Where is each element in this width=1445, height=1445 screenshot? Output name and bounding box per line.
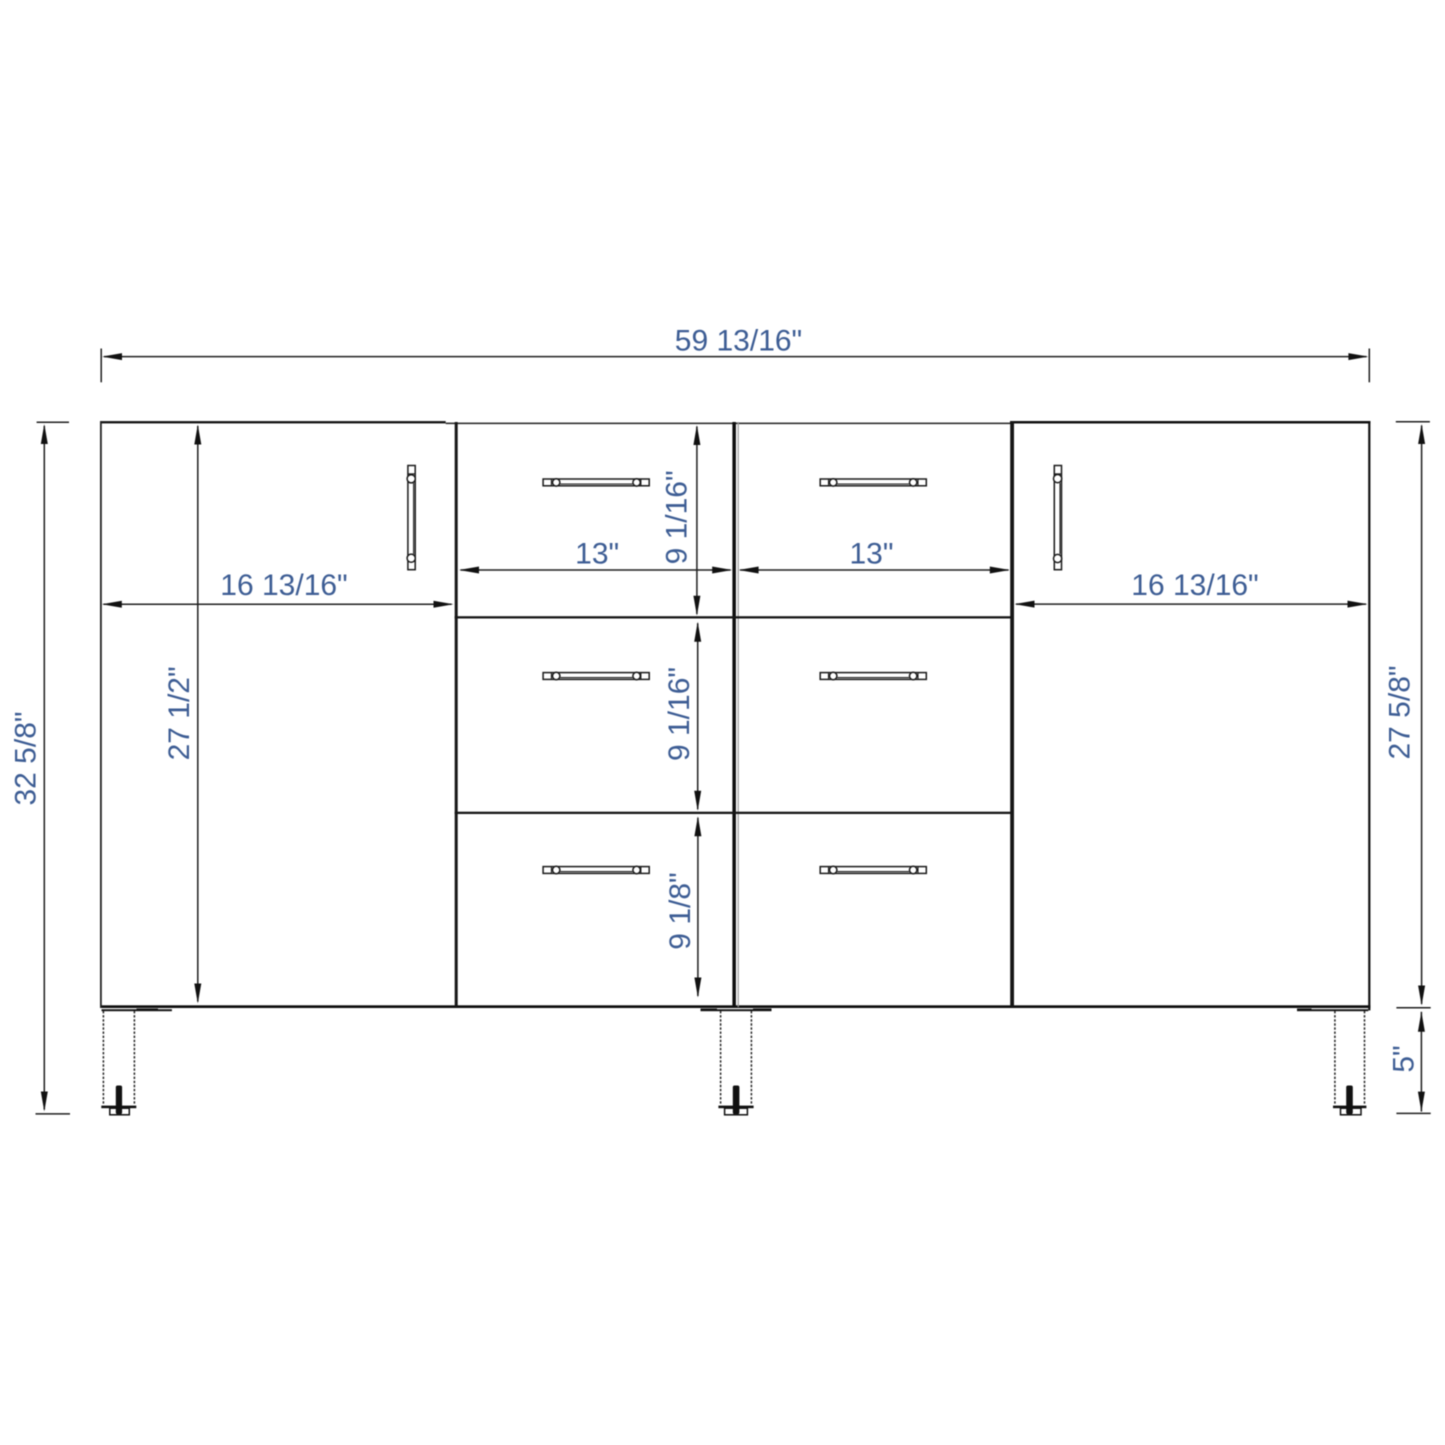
svg-text:32 5/8": 32 5/8" xyxy=(10,711,43,805)
svg-text:16 13/16": 16 13/16" xyxy=(1131,569,1258,602)
svg-text:27 5/8": 27 5/8" xyxy=(1384,665,1417,759)
svg-text:13": 13" xyxy=(575,538,619,571)
svg-text:13": 13" xyxy=(849,538,893,571)
svg-text:9 1/16": 9 1/16" xyxy=(661,470,694,564)
svg-text:16 13/16": 16 13/16" xyxy=(220,569,347,602)
svg-text:59 13/16": 59 13/16" xyxy=(675,325,802,358)
svg-text:9 1/8": 9 1/8" xyxy=(664,872,697,949)
svg-text:27 1/2": 27 1/2" xyxy=(163,666,196,760)
svg-text:5": 5" xyxy=(1388,1045,1421,1072)
svg-text:9 1/16": 9 1/16" xyxy=(663,667,696,761)
